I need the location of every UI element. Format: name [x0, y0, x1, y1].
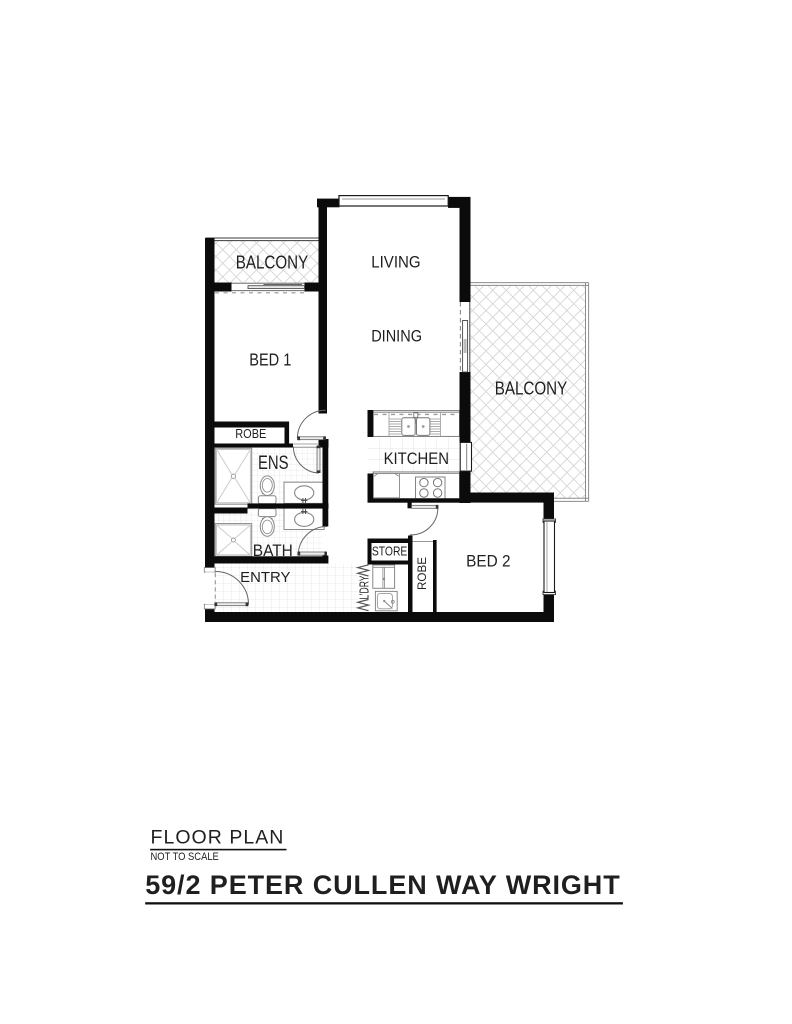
svg-text:NOT TO SCALE: NOT TO SCALE	[151, 851, 219, 863]
svg-text:ENTRY: ENTRY	[240, 570, 291, 586]
svg-text:ENS: ENS	[258, 453, 289, 474]
svg-text:BED 1: BED 1	[249, 350, 291, 370]
svg-text:59/2 PETER CULLEN WAY WRIGHT: 59/2 PETER CULLEN WAY WRIGHT	[145, 870, 620, 900]
svg-text:LIVING: LIVING	[371, 253, 420, 272]
svg-text:BALCONY: BALCONY	[236, 251, 309, 272]
svg-text:ROBE: ROBE	[415, 557, 429, 590]
svg-text:FLOOR PLAN: FLOOR PLAN	[151, 826, 284, 848]
svg-text:STORE: STORE	[372, 545, 408, 559]
svg-text:L’DRY: L’DRY	[357, 575, 372, 599]
svg-text:BALCONY: BALCONY	[495, 377, 568, 398]
svg-text:DINING: DINING	[371, 327, 422, 346]
svg-text:KITCHEN: KITCHEN	[384, 450, 449, 468]
svg-text:ROBE: ROBE	[235, 426, 266, 441]
svg-text:BATH: BATH	[253, 541, 293, 560]
svg-text:BED 2: BED 2	[466, 552, 510, 570]
